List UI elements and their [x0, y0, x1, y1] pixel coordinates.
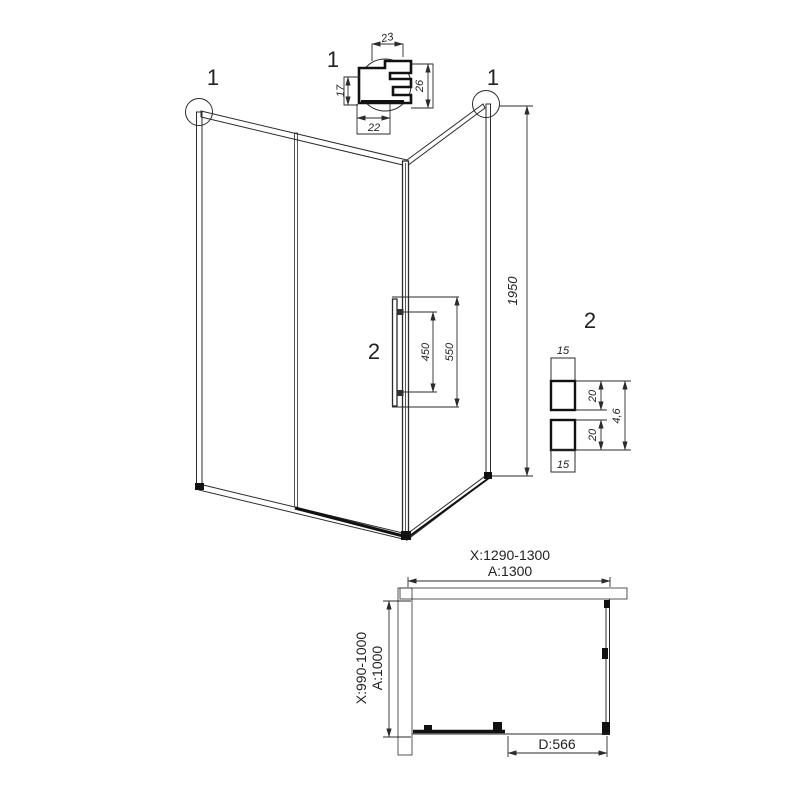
plan-depth-nominal: A:1000: [369, 646, 385, 691]
dim-20-upper: 20: [587, 389, 599, 403]
dim-26: 26: [414, 79, 426, 93]
left-foot: [195, 483, 204, 490]
plan-door-width: D:566: [538, 736, 576, 752]
door-handle-plan: [493, 722, 502, 731]
callout-label-left: 1: [207, 65, 219, 90]
detail2-upper-profile: [551, 381, 575, 410]
dim-46-overall: 4,6: [611, 407, 623, 423]
dim-15-bottom: 15: [557, 459, 570, 471]
handle-callout-label: 2: [368, 339, 380, 364]
wall-profile-top-mark: [604, 600, 610, 608]
side-panel-bracket: [602, 648, 608, 659]
detail2-lower-profile: [551, 420, 575, 450]
detail1-label: 1: [327, 47, 339, 72]
handle-hole-spacing-dim: 450: [420, 342, 432, 361]
dim-20-lower: 20: [587, 428, 599, 442]
wall-profile-section: [359, 61, 411, 103]
dim-17: 17: [335, 84, 347, 97]
plan-depth-range: X:990-1000: [353, 632, 369, 705]
back-corner-foot: [484, 472, 492, 479]
shower-enclosure-technical-drawing: 1 1 2 450 550 1950 1: [0, 0, 800, 800]
handle-knob-bottom: [397, 390, 404, 396]
handle-length-dim: 550: [444, 342, 456, 361]
front-corner-foot: [401, 531, 411, 540]
door-roller-left: [424, 725, 432, 732]
plan-width-nominal: A:1300: [488, 563, 533, 579]
door-handle: [393, 299, 398, 406]
page-background: [0, 0, 800, 800]
dim-15-top: 15: [557, 345, 570, 357]
plan-width-range: X:1290-1300: [470, 547, 550, 563]
dim-22: 22: [367, 122, 380, 134]
corner-post-mark: [602, 722, 610, 735]
detail2-label: 2: [584, 308, 596, 333]
callout-label-right: 1: [487, 65, 499, 90]
height-dim-text: 1950: [505, 276, 520, 306]
